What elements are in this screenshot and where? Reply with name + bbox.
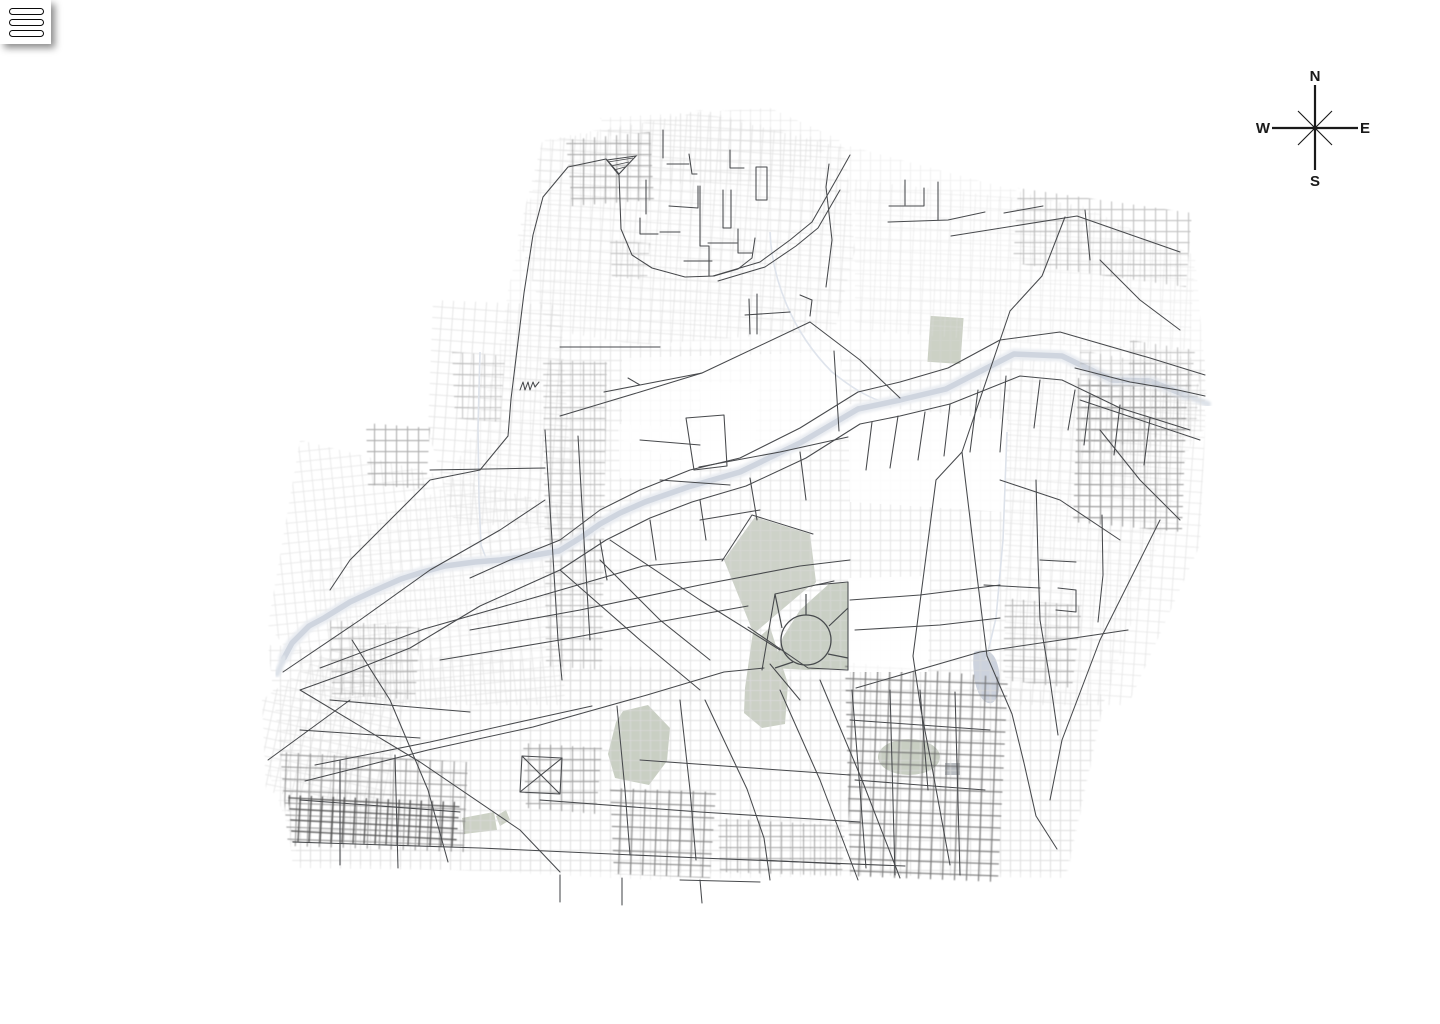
svg-text:S: S xyxy=(1310,173,1320,190)
svg-text:E: E xyxy=(1360,120,1370,137)
svg-text:N: N xyxy=(1310,68,1321,85)
svg-text:W: W xyxy=(1256,120,1271,137)
